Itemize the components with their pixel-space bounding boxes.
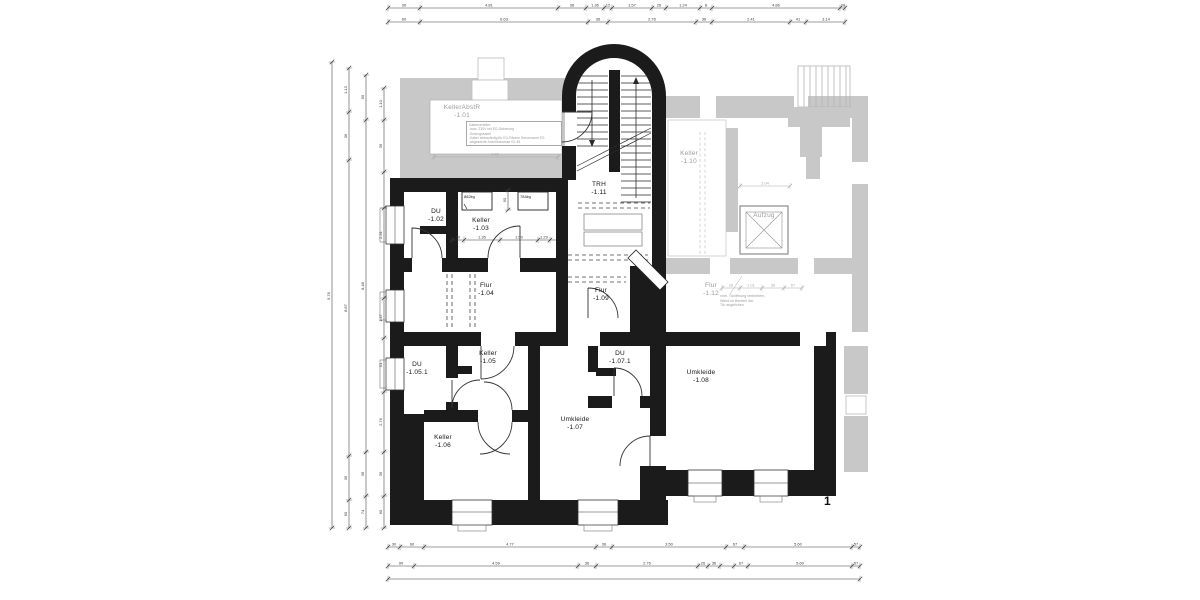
- floor-plan-canvas: 304.81361.36121.57261.2484.8626606.63362…: [0, 0, 1200, 600]
- dim-label: 1.36: [591, 2, 600, 7]
- floor-plan-page: 304.81361.36121.57261.2484.8626606.63362…: [0, 0, 1200, 600]
- dim-chain: 904.59362.762636675.6057: [386, 560, 862, 569]
- dim-label: 1.57: [628, 2, 637, 7]
- dim-label: 2.31: [378, 230, 383, 239]
- elevator-shaft: [740, 206, 788, 254]
- dim-label: 1.50: [515, 234, 524, 239]
- dim-label: 30: [402, 2, 407, 7]
- dim-label: 50: [456, 234, 461, 239]
- dim-label: 36: [343, 133, 348, 138]
- dim-label: 36: [602, 541, 607, 546]
- dim-label: 2.76: [378, 417, 383, 426]
- dim-label: 1.35: [478, 234, 487, 239]
- dim-label: 9.76: [326, 291, 331, 300]
- dim-label: 95: [360, 94, 365, 99]
- dim-label: 36: [360, 471, 365, 476]
- dim-label: 8: [705, 2, 708, 7]
- dim-label: 90: [399, 560, 404, 565]
- dim-label: 26: [657, 2, 662, 7]
- dim-label: 57: [854, 560, 859, 565]
- dim-label: 1.13: [343, 85, 348, 94]
- dim-label: 26: [729, 282, 734, 287]
- dim-chain: 958.483674: [360, 73, 369, 530]
- dim-label: 26: [841, 2, 846, 7]
- dim-chain: 606.63362.76362.41413.14: [386, 16, 847, 25]
- dim-label: 36: [712, 560, 717, 565]
- dim-chain: 2.04: [738, 180, 792, 189]
- dim-chain: 501.351.501.29: [450, 234, 556, 243]
- dim-label: 67: [733, 541, 738, 546]
- dim-label: 4.86: [491, 151, 500, 156]
- dim-label: 36: [378, 143, 383, 148]
- dim-label: 2.76: [648, 16, 657, 21]
- dim-label: 36: [570, 2, 575, 7]
- dim-label: 1.24: [679, 2, 688, 7]
- dim-label: 1.29: [540, 234, 549, 239]
- dim-label: 67: [791, 282, 796, 287]
- dim-label: 36: [702, 16, 707, 21]
- dim-label: 41: [796, 16, 801, 21]
- dim-label: 12: [606, 2, 611, 7]
- dim-chain: 1.13368.873660: [343, 66, 352, 530]
- dim-label: 36: [343, 475, 348, 480]
- dim-label: 3.50: [665, 541, 674, 546]
- dim-label: 26: [701, 560, 706, 565]
- dim-label: 5.60: [794, 541, 803, 546]
- dim-label: 67: [739, 560, 744, 565]
- dim-label: 2.41: [747, 16, 756, 21]
- dim-label: 90: [502, 197, 507, 202]
- dim-label: 2.76: [643, 560, 652, 565]
- dim-label: 1.01: [747, 282, 756, 287]
- dim-chain: [386, 576, 862, 582]
- dim-chain: 9.76: [326, 60, 335, 530]
- dim-label: 4.77: [506, 541, 515, 546]
- dim-label: 60: [343, 511, 348, 516]
- dim-label: 1.47: [378, 313, 383, 322]
- dim-label: 60: [378, 509, 383, 514]
- dim-label: 1.10: [378, 99, 383, 108]
- dim-label: 51: [378, 362, 383, 367]
- dim-chain: 30604.77363.50675.6057: [386, 541, 862, 550]
- dim-label: 3.14: [822, 16, 831, 21]
- dim-label: 4.81: [485, 2, 494, 7]
- dim-label: 36: [771, 282, 776, 287]
- dim-label: 8.87: [343, 303, 348, 312]
- dim-label: 5.60: [796, 560, 805, 565]
- dim-label: 57: [854, 541, 859, 546]
- dim-label: 74: [360, 509, 365, 514]
- dim-label: 6.63: [500, 16, 509, 21]
- dim-label: 60: [402, 16, 407, 21]
- dim-label: 8.48: [360, 281, 365, 290]
- dim-chain: 304.81361.36121.57261.2484.8626: [386, 2, 847, 11]
- dim-label: 2.04: [761, 180, 770, 185]
- dim-label: 4.59: [492, 560, 501, 565]
- dim-label: 36: [378, 471, 383, 476]
- dim-label: 36: [585, 560, 590, 565]
- dim-label: 4.86: [772, 2, 781, 7]
- dim-label: 60: [410, 541, 415, 546]
- dim-label: 30: [392, 541, 397, 546]
- dim-label: 36: [596, 16, 601, 21]
